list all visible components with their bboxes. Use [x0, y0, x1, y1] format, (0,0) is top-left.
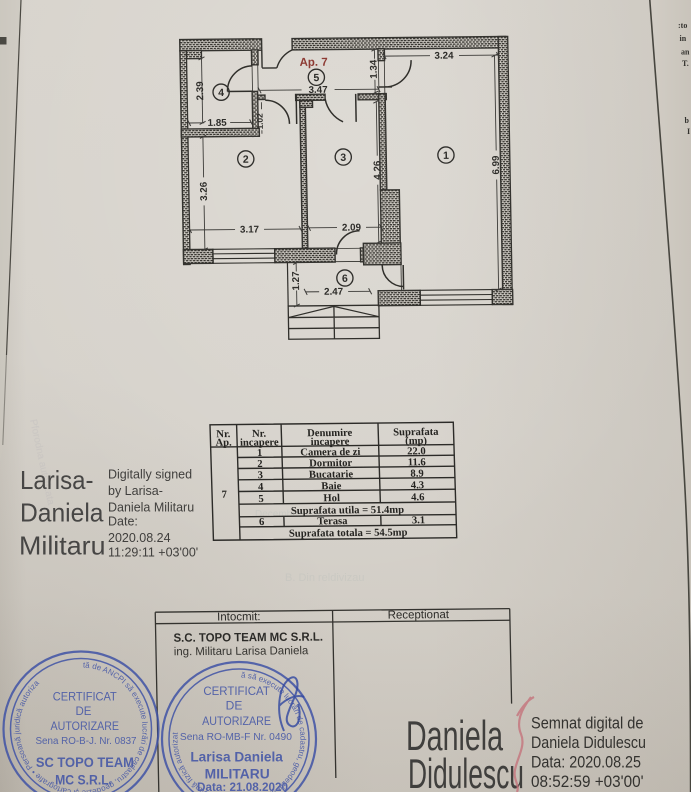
svg-text:Digitally signed: Digitally signed: [108, 468, 192, 482]
svg-text:2.39: 2.39: [195, 81, 206, 101]
svg-text:Dormitor: Dormitor: [309, 458, 353, 469]
svg-text:an: an: [681, 48, 690, 57]
svg-text:8.9: 8.9: [410, 469, 424, 480]
svg-text:Daniela Militaru: Daniela Militaru: [108, 501, 194, 515]
svg-text:CERTIFICAT: CERTIFICAT: [53, 692, 117, 704]
svg-text:3: 3: [340, 152, 346, 164]
svg-text:AUTORIZARE: AUTORIZARE: [202, 714, 271, 728]
svg-text:2: 2: [243, 154, 249, 166]
svg-text:1.27: 1.27: [291, 271, 302, 291]
svg-text:DE: DE: [76, 706, 92, 718]
svg-text:3.24: 3.24: [434, 51, 454, 62]
svg-text:2: 2: [257, 459, 263, 470]
svg-text:11:29:11 +03'00': 11:29:11 +03'00': [108, 546, 198, 560]
svg-text:5: 5: [313, 72, 319, 84]
svg-text:Ap. 7: Ap. 7: [299, 57, 327, 69]
svg-text:Receptionat: Receptionat: [388, 609, 450, 621]
svg-text:6: 6: [259, 517, 265, 528]
svg-text:in: in: [680, 34, 687, 43]
svg-text:22.0: 22.0: [407, 446, 426, 457]
svg-text:CERTIFICAT: CERTIFICAT: [203, 684, 270, 698]
svg-text:Militaru: Militaru: [19, 531, 106, 561]
svg-text:T.: T.: [682, 59, 689, 68]
svg-text:2.09: 2.09: [342, 222, 362, 233]
svg-text:2.47: 2.47: [324, 287, 344, 298]
svg-text:Date:: Date:: [108, 515, 138, 529]
svg-text:4.26: 4.26: [372, 160, 383, 180]
svg-text:1.85: 1.85: [208, 118, 228, 129]
svg-text:DE: DE: [226, 699, 243, 713]
svg-text:08:52:59 +03'00': 08:52:59 +03'00': [531, 772, 644, 791]
svg-text:1.02: 1.02: [256, 113, 265, 129]
svg-text:1: 1: [443, 150, 449, 162]
svg-text:MC S.R.L.: MC S.R.L.: [55, 773, 112, 788]
svg-text:3.17: 3.17: [240, 224, 260, 235]
svg-text:Intocmit:: Intocmit:: [217, 611, 261, 623]
svg-text:by Larisa-: by Larisa-: [108, 484, 163, 498]
svg-text:3.1: 3.1: [412, 515, 426, 526]
svg-text:SC TOPO TEAM: SC TOPO TEAM: [36, 755, 134, 770]
svg-text:2020.08.24: 2020.08.24: [108, 531, 171, 545]
svg-text:Bucatarie: Bucatarie: [309, 469, 354, 480]
svg-text:Daniela Didulescu: Daniela Didulescu: [531, 733, 646, 752]
svg-text:5: 5: [258, 494, 264, 505]
svg-text:3.47: 3.47: [308, 85, 328, 96]
svg-text:Larisa-: Larisa-: [20, 465, 94, 495]
svg-text:3.26: 3.26: [199, 181, 210, 201]
svg-text:Sena RO-B-J. Nr. 0837: Sena RO-B-J. Nr. 0837: [36, 736, 137, 747]
svg-text:Baie: Baie: [321, 481, 342, 492]
svg-text:Semnat digital de: Semnat digital de: [531, 714, 644, 733]
svg-text:Hol: Hol: [323, 493, 340, 504]
svg-text:Larisa Daniela: Larisa Daniela: [190, 750, 283, 765]
svg-text:11.6: 11.6: [408, 457, 426, 468]
svg-text:Data: 21.08.2020: Data: 21.08.2020: [197, 780, 288, 792]
svg-text:Terasa: Terasa: [317, 516, 348, 527]
svg-text:4: 4: [218, 87, 224, 99]
svg-text:1: 1: [257, 448, 263, 459]
svg-text:6.99: 6.99: [491, 155, 502, 175]
svg-text:Data: 2020.08.25: Data: 2020.08.25: [531, 753, 641, 772]
svg-text:6: 6: [342, 273, 348, 285]
svg-text:Didulescu: Didulescu: [408, 750, 524, 792]
svg-text:ing. Militaru Larisa Daniela: ing. Militaru Larisa Daniela: [174, 645, 309, 658]
svg-text:B. Din reldivizau: B. Din reldivizau: [285, 572, 364, 584]
svg-text:1.34: 1.34: [369, 59, 380, 79]
svg-text:S.C. TOPO TEAM MC S.R.L.: S.C. TOPO TEAM MC S.R.L.: [173, 630, 323, 645]
svg-text:I: I: [687, 127, 690, 136]
svg-text:Camera de zi: Camera de zi: [300, 447, 360, 459]
svg-text:AUTORIZARE: AUTORIZARE: [51, 721, 120, 733]
svg-text:4.3: 4.3: [411, 480, 425, 491]
svg-text:4.6: 4.6: [411, 492, 425, 503]
svg-text:Daniela: Daniela: [20, 498, 104, 528]
svg-text:Suprafata totala = 54.5mp: Suprafata totala = 54.5mp: [289, 527, 408, 539]
svg-text::to: :to: [678, 21, 687, 30]
svg-text:b: b: [685, 116, 690, 125]
svg-text:3: 3: [258, 470, 264, 481]
svg-text:Ap.: Ap.: [215, 438, 232, 449]
svg-text:Suprafata utila = 51.4mp: Suprafata utila = 51.4mp: [291, 505, 405, 517]
svg-text:Sena RO-MB-F Nr. 0490: Sena RO-MB-F Nr. 0490: [180, 732, 292, 743]
